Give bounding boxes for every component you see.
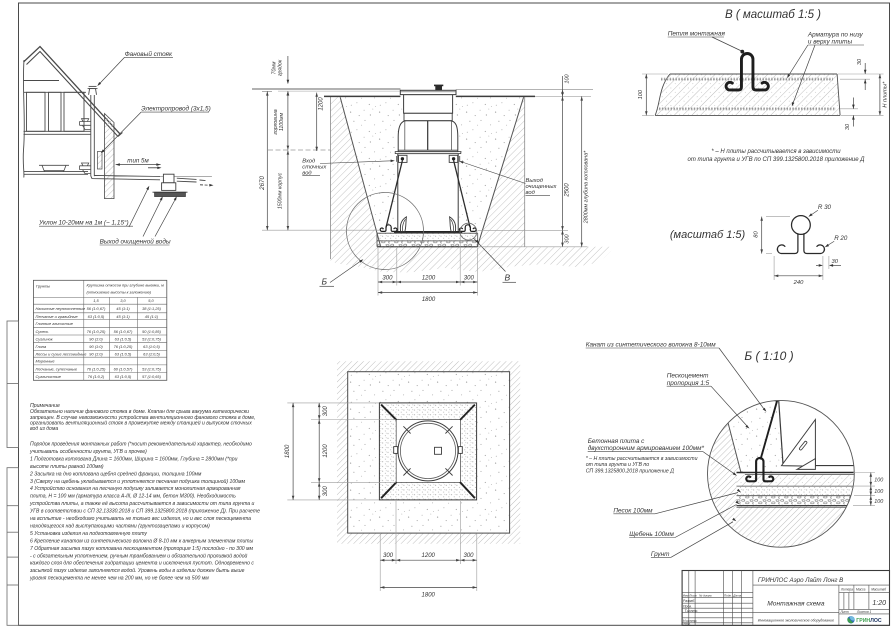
svg-text:Песок 100мм: Песок 100мм	[613, 507, 653, 514]
svg-text:100: 100	[874, 489, 883, 495]
svg-text:Моренные: Моренные	[36, 359, 56, 364]
svg-text:300: 300	[464, 275, 475, 281]
svg-text:30: 30	[845, 123, 851, 130]
svg-text:63 (1:0,5): 63 (1:0,5)	[115, 374, 132, 379]
svg-text:В: В	[505, 273, 511, 283]
svg-text:4 Устройство основания на пе: 4 Устройство основания на песчаную подуш…	[30, 485, 241, 492]
svg-text:300: 300	[382, 275, 393, 281]
svg-text:1100мм: 1100мм	[279, 112, 285, 131]
svg-text:В ( масштаб 1:5 ): В ( масштаб 1:5 )	[725, 9, 821, 21]
svg-text:56 (1:0,67): 56 (1:0,67)	[87, 306, 107, 311]
svg-text:(отношение высоты к заложению): (отношение высоты к заложению)	[87, 290, 152, 295]
svg-text:60 (1:0,57): 60 (1:0,57)	[114, 366, 134, 371]
svg-text:(масштаб 1:5): (масштаб 1:5)	[670, 229, 746, 241]
svg-text:Арматура по низу: Арматура по низу	[807, 32, 864, 39]
svg-text:Разраб.: Разраб.	[683, 599, 695, 603]
svg-text:63 (1:0,5): 63 (1:0,5)	[143, 351, 160, 356]
svg-text:1200: 1200	[422, 275, 436, 281]
svg-text:Примечание: Примечание	[30, 403, 60, 409]
svg-text:1200: 1200	[319, 97, 325, 111]
svg-text:53 (1:0,75): 53 (1:0,75)	[142, 336, 162, 341]
svg-text:Лессы и сухие лессовидные: Лессы и сухие лессовидные	[35, 351, 88, 356]
svg-text:и верху плиты: и верху плиты	[808, 39, 853, 46]
svg-text:5 Установка изделия на подгот: 5 Установка изделия на подготовленную пл…	[30, 531, 147, 537]
svg-text:Лист: Лист	[840, 610, 850, 614]
svg-text:7 Обратная засыпка пазух котл: 7 Обратная засыпка пазух котлована песко…	[30, 545, 254, 552]
svg-text:Фановый стояк: Фановый стояк	[125, 50, 173, 58]
svg-text:1800: 1800	[285, 444, 291, 458]
svg-text:Масса: Масса	[856, 588, 866, 592]
svg-text:76 (1:0,25): 76 (1:0,25)	[87, 329, 107, 334]
svg-text:плита, Н = 100 мм (арматура кл: плита, Н = 100 мм (арматура класса А-III…	[30, 494, 236, 500]
svg-text:63 (1:0,5): 63 (1:0,5)	[115, 351, 132, 356]
svg-text:300: 300	[323, 486, 329, 497]
svg-text:30: 30	[832, 259, 839, 265]
svg-text:Крутизна откосов при глубине в: Крутизна откосов при глубине выемки, м	[87, 283, 165, 288]
svg-text:вод из дома: вод из дома	[30, 426, 58, 432]
svg-text:Н плиты*: Н плиты*	[882, 81, 888, 108]
svg-text:76 (1:0,2): 76 (1:0,2)	[88, 374, 105, 379]
svg-text:уровня пескоцемента не менее ч: уровня пескоцемента не менее чем на 200 …	[29, 576, 209, 582]
svg-text:Б: Б	[322, 277, 328, 287]
svg-text:Электропровод (3х1,5): Электропровод (3х1,5)	[141, 105, 211, 113]
svg-text:Глина: Глина	[36, 344, 47, 349]
svg-text:100: 100	[638, 89, 644, 99]
svg-text:Щебень 100мм: Щебень 100мм	[629, 530, 674, 538]
svg-text:Пескоцемент: Пескоцемент	[667, 373, 709, 380]
svg-text:100: 100	[874, 499, 883, 505]
svg-text:Суглинистые: Суглинистые	[36, 374, 62, 379]
svg-text:3,0: 3,0	[120, 298, 126, 303]
svg-text:1200: 1200	[422, 553, 436, 559]
svg-text:ГРИНЛОС: ГРИНЛОС	[856, 618, 882, 624]
svg-text:Изм: Изм	[683, 594, 689, 598]
svg-text:Пров.: Пров.	[683, 604, 692, 608]
svg-text:Утв.: Утв.	[683, 622, 691, 626]
svg-text:Бетонная плита с: Бетонная плита с	[588, 438, 645, 445]
svg-text:R 30: R 30	[818, 204, 832, 211]
svg-text:тип 5м: тип 5м	[127, 158, 149, 165]
svg-text:Масштаб: Масштаб	[871, 588, 886, 592]
svg-text:90 (1:0): 90 (1:0)	[89, 336, 103, 341]
svg-text:засыпкой пазух изделие заполня: засыпкой пазух изделие заполняется водой…	[29, 567, 245, 574]
svg-text:- с обязательным уплотнением,: - с обязательным уплотнением, ручным тра…	[30, 552, 248, 559]
svg-text:300: 300	[383, 553, 394, 559]
svg-text:Глинные глинистые: Глинные глинистые	[36, 321, 74, 326]
svg-text:находящегося над выступающими: находящегося над выступающими частями (г…	[30, 523, 210, 529]
svg-text:ГРИНЛОС Аэро Лайт Лонг В: ГРИНЛОС Аэро Лайт Лонг В	[758, 577, 843, 584]
svg-text:Монтажная схема: Монтажная схема	[767, 600, 825, 607]
svg-text:63 (1:0,5): 63 (1:0,5)	[115, 336, 132, 341]
svg-text:двухсторонним армированием 100: двухсторонним армированием 100мм*	[588, 444, 705, 452]
svg-text:5,0: 5,0	[148, 298, 154, 303]
svg-text:от типа грунта и УГВ по: от типа грунта и УГВ по	[586, 462, 650, 468]
svg-text:53 (1:0,75): 53 (1:0,75)	[142, 366, 162, 371]
svg-text:57 (1:0,65): 57 (1:0,65)	[142, 374, 162, 379]
svg-text:Б ( 1:10 ): Б ( 1:10 )	[744, 349, 793, 363]
svg-text:Петля монтажная: Петля монтажная	[668, 31, 726, 38]
svg-text:45 (1:1): 45 (1:1)	[116, 306, 130, 311]
svg-text:Грунт: Грунт	[651, 551, 670, 558]
svg-text:УГВ в соответствии с СП 32.133: УГВ в соответствии с СП 32.13330.2018 и …	[30, 509, 260, 515]
svg-text:1500мм корпус: 1500мм корпус	[277, 172, 283, 209]
svg-text:№ докум.: № докум.	[699, 594, 712, 598]
svg-text:300: 300	[323, 406, 329, 417]
svg-text:учитывать особенности грунта,: учитывать особенности грунта, УГВ и проч…	[29, 449, 147, 455]
svg-text:Инновационное экологическое об: Инновационное экологическое оборудование	[758, 619, 834, 623]
svg-text:100: 100	[874, 478, 883, 484]
svg-text:каждого слоя для обеспечения г: каждого слоя для обеспечения гидратации …	[30, 561, 254, 567]
svg-text:Литера: Литера	[840, 588, 853, 592]
svg-text:Листов 1: Листов 1	[856, 610, 871, 614]
svg-text:3 (Сверху на щебень укладывае: 3 (Сверху на щебень укладывается и уплот…	[30, 478, 245, 485]
svg-text:30: 30	[857, 58, 863, 65]
svg-text:2 Засыпка на дно котлована ще: 2 Засыпка на дно котлована щебня средней…	[29, 470, 202, 477]
svg-text:на всплытие - необходимо учиты: на всплытие - необходимо учитывать не то…	[30, 516, 251, 522]
svg-text:1200: 1200	[323, 444, 329, 458]
svg-text:Выход очищенной воды: Выход очищенной воды	[100, 237, 171, 245]
svg-text:от типа грунта и УГВ по СП 399: от типа грунта и УГВ по СП 399.1325800.2…	[687, 157, 865, 163]
svg-text:высоте плиты равной 100мм): высоте плиты равной 100мм)	[30, 463, 104, 470]
svg-text:Уклон 10-20мм на 1м (~ 1,15°): Уклон 10-20мм на 1м (~ 1,15°)	[38, 219, 129, 227]
svg-text:1800: 1800	[422, 297, 436, 303]
svg-text:R 20: R 20	[834, 235, 848, 242]
svg-text:76 (1:0,25): 76 (1:0,25)	[114, 344, 134, 349]
svg-text:45 (1:1): 45 (1:1)	[145, 314, 159, 319]
svg-text:80: 80	[753, 231, 759, 238]
svg-text:90 (1:0): 90 (1:0)	[89, 344, 103, 349]
svg-text:50 (1:0,85): 50 (1:0,85)	[142, 329, 162, 334]
svg-text:100: 100	[564, 73, 570, 83]
svg-text:Супесь: Супесь	[36, 329, 49, 334]
svg-text:300: 300	[463, 553, 474, 559]
svg-text:2500: 2500	[564, 183, 570, 198]
svg-text:Грунты: Грунты	[36, 284, 50, 289]
svg-text:организовать вентиляционный ст: организовать вентиляционный стояк в пром…	[30, 419, 252, 426]
svg-text:Подп.: Подп.	[724, 594, 732, 598]
svg-text:Канат из синтетического волокн: Канат из синтетического волокна 8-10мм	[586, 341, 717, 348]
svg-text:240: 240	[793, 280, 804, 286]
svg-text:1:20: 1:20	[872, 600, 886, 607]
svg-text:300: 300	[564, 233, 570, 243]
svg-text:Порядок проведения монтажных р: Порядок проведения монтажных работ (*нос…	[30, 441, 252, 448]
svg-text:6 Крепление канатом из синтет: 6 Крепление канатом из синтетического во…	[30, 538, 254, 544]
svg-text:90 (1:0): 90 (1:0)	[89, 351, 103, 356]
svg-text:2800мм глубина котлована*: 2800мм глубина котлована*	[584, 150, 590, 224]
svg-text:2670: 2670	[259, 176, 266, 191]
svg-text:1800: 1800	[422, 592, 436, 598]
svg-text:Лист: Лист	[688, 594, 697, 598]
svg-text:38 (1:1,25): 38 (1:1,25)	[142, 306, 162, 311]
svg-text:Дата: Дата	[732, 594, 741, 598]
svg-text:Насыпные неуплотненные: Насыпные неуплотненные	[36, 306, 86, 311]
svg-text:СП 399.1325800.2018 приложение: СП 399.1325800.2018 приложение Д	[586, 469, 675, 475]
svg-text:* – Н плиты рассчитывается в з: * – Н плиты рассчитывается в зависимости	[586, 456, 698, 462]
svg-text:устройства плиты, а также её в: устройства плиты, а также её высота расс…	[29, 500, 255, 507]
svg-text:Песчаные, супесчаные: Песчаные, супесчаные	[36, 366, 78, 371]
svg-text:56 (1:0,67): 56 (1:0,67)	[114, 329, 134, 334]
svg-text:76 (1:0,25): 76 (1:0,25)	[87, 366, 107, 371]
svg-text:Т.контр.: Т.контр.	[685, 609, 699, 613]
svg-text:Песчаные и гравийные: Песчаные и гравийные	[36, 314, 79, 319]
svg-text:грядок: грядок	[277, 59, 283, 76]
svg-text:* – Н плиты рассчитывается в з: * – Н плиты рассчитывается в зависимости	[711, 149, 841, 155]
svg-text:45 (1:1): 45 (1:1)	[116, 314, 130, 319]
svg-text:1 Подготовка котлована Длина: 1 Подготовка котлована Длина = 1600мм, Ш…	[30, 456, 238, 462]
svg-text:63 (1:0,5): 63 (1:0,5)	[88, 314, 105, 319]
svg-text:1,5: 1,5	[93, 298, 99, 303]
svg-text:пропорция 1:5: пропорция 1:5	[667, 380, 710, 387]
svg-text:63 (1:0,5): 63 (1:0,5)	[143, 344, 160, 349]
svg-text:Суглинок: Суглинок	[36, 336, 53, 341]
